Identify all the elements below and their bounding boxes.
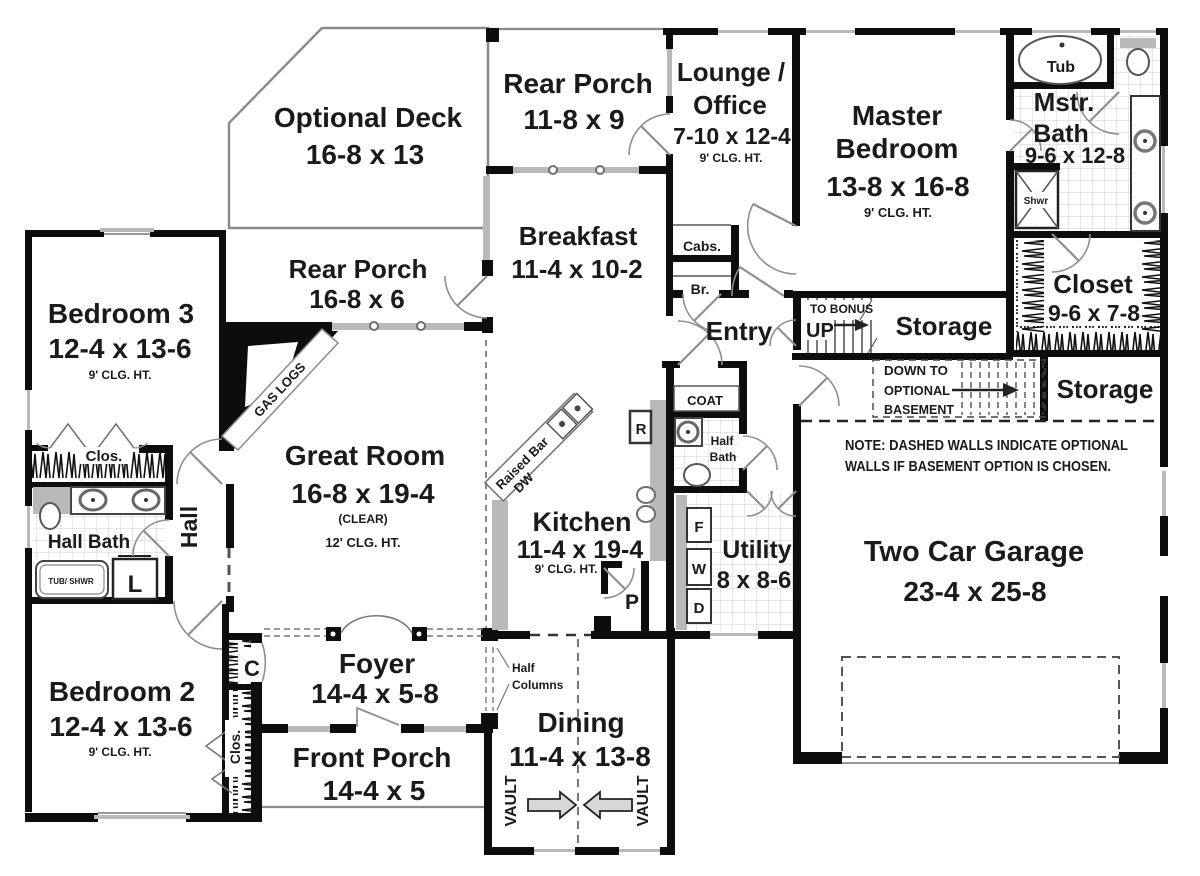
svg-text:12-4 x 13-6: 12-4 x 13-6 bbox=[49, 711, 192, 742]
svg-text:Dining: Dining bbox=[537, 707, 624, 738]
svg-text:12' CLG. HT.: 12' CLG. HT. bbox=[325, 535, 400, 550]
svg-text:Half: Half bbox=[512, 661, 536, 675]
svg-text:11-4 x 19-4: 11-4 x 19-4 bbox=[517, 536, 644, 564]
svg-text:Office: Office bbox=[693, 90, 767, 120]
svg-text:Half: Half bbox=[711, 434, 735, 448]
svg-text:Front Porch: Front Porch bbox=[293, 742, 452, 773]
svg-text:Clos.: Clos. bbox=[86, 448, 123, 465]
svg-text:C: C bbox=[244, 656, 260, 681]
svg-text:Hall: Hall bbox=[176, 506, 202, 548]
svg-text:Two Car Garage: Two Car Garage bbox=[864, 536, 1084, 568]
svg-text:16-8 x 19-4: 16-8 x 19-4 bbox=[291, 478, 435, 509]
svg-text:Closet: Closet bbox=[1053, 269, 1133, 299]
svg-text:Entry: Entry bbox=[706, 316, 773, 346]
svg-text:R: R bbox=[636, 421, 647, 438]
svg-text:Cabs.: Cabs. bbox=[683, 238, 721, 254]
svg-text:P: P bbox=[625, 591, 639, 614]
svg-text:11-8 x 9: 11-8 x 9 bbox=[523, 104, 624, 135]
svg-text:Kitchen: Kitchen bbox=[532, 507, 631, 537]
svg-text:14-4 x 5-8: 14-4 x 5-8 bbox=[311, 678, 439, 709]
svg-text:Master: Master bbox=[852, 100, 942, 131]
svg-text:Optional Deck: Optional Deck bbox=[274, 102, 463, 133]
svg-text:Storage: Storage bbox=[896, 311, 993, 341]
svg-text:7-10 x 12-4: 7-10 x 12-4 bbox=[673, 123, 791, 149]
svg-text:9-6 x 7-8: 9-6 x 7-8 bbox=[1048, 300, 1140, 326]
svg-text:TO BONUS: TO BONUS bbox=[810, 302, 873, 316]
svg-text:Shwr: Shwr bbox=[1024, 196, 1049, 207]
svg-text:Utility: Utility bbox=[722, 536, 792, 564]
svg-text:Bedroom: Bedroom bbox=[836, 133, 959, 164]
svg-text:9' CLG. HT.: 9' CLG. HT. bbox=[89, 368, 152, 382]
svg-text:Bedroom 2: Bedroom 2 bbox=[49, 676, 195, 707]
svg-text:Rear Porch: Rear Porch bbox=[289, 254, 428, 284]
svg-text:TUB/ SHWR: TUB/ SHWR bbox=[48, 577, 94, 586]
svg-text:VAULT: VAULT bbox=[503, 775, 520, 826]
svg-text:DOWN TO: DOWN TO bbox=[884, 364, 948, 378]
svg-text:NOTE: DASHED WALLS INDICATE OP: NOTE: DASHED WALLS INDICATE OPTIONAL bbox=[845, 437, 1128, 454]
svg-text:UP: UP bbox=[806, 320, 834, 342]
svg-text:Mstr.: Mstr. bbox=[1034, 87, 1095, 117]
svg-text:Great Room: Great Room bbox=[285, 440, 445, 471]
svg-text:D: D bbox=[694, 600, 705, 617]
svg-text:Breakfast: Breakfast bbox=[519, 221, 638, 251]
svg-text:OPTIONAL: OPTIONAL bbox=[884, 384, 950, 398]
svg-text:Bath: Bath bbox=[710, 450, 737, 464]
svg-text:8 x 8-6: 8 x 8-6 bbox=[717, 567, 792, 594]
svg-text:9' CLG. HT.: 9' CLG. HT. bbox=[864, 205, 932, 220]
svg-text:Br.: Br. bbox=[691, 281, 710, 297]
svg-text:16-8 x 13: 16-8 x 13 bbox=[306, 139, 424, 170]
svg-text:BASEMENT: BASEMENT bbox=[884, 403, 954, 417]
svg-text:Columns: Columns bbox=[512, 678, 564, 692]
svg-text:12-4 x 13-6: 12-4 x 13-6 bbox=[48, 333, 191, 364]
svg-text:Tub: Tub bbox=[1047, 59, 1075, 76]
svg-text:Hall Bath: Hall Bath bbox=[48, 532, 130, 553]
svg-text:23-4 x 25-8: 23-4 x 25-8 bbox=[903, 576, 1046, 607]
svg-text:14-4 x 5: 14-4 x 5 bbox=[323, 775, 426, 806]
svg-text:Lounge /: Lounge / bbox=[677, 57, 785, 87]
svg-text:9-6 x 12-8: 9-6 x 12-8 bbox=[1025, 143, 1125, 168]
svg-text:9' CLG. HT.: 9' CLG. HT. bbox=[535, 562, 598, 576]
svg-text:F: F bbox=[694, 519, 703, 536]
svg-text:Clos.: Clos. bbox=[227, 730, 243, 764]
svg-text:Bedroom 3: Bedroom 3 bbox=[48, 298, 194, 329]
svg-text:Rear Porch: Rear Porch bbox=[503, 68, 652, 99]
svg-text:11-4 x 10-2: 11-4 x 10-2 bbox=[511, 254, 643, 284]
svg-text:11-4 x 13-8: 11-4 x 13-8 bbox=[509, 741, 651, 772]
svg-text:Foyer: Foyer bbox=[339, 648, 415, 679]
svg-text:13-8 x 16-8: 13-8 x 16-8 bbox=[826, 171, 969, 202]
svg-text:(CLEAR): (CLEAR) bbox=[338, 512, 387, 526]
svg-text:Storage: Storage bbox=[1057, 374, 1154, 404]
svg-text:16-8 x 6: 16-8 x 6 bbox=[309, 284, 404, 314]
svg-text:9' CLG. HT.: 9' CLG. HT. bbox=[700, 151, 763, 165]
svg-text:COAT: COAT bbox=[687, 393, 723, 408]
svg-text:VAULT: VAULT bbox=[635, 775, 652, 826]
svg-text:L: L bbox=[128, 571, 143, 598]
svg-text:WALLS IF BASEMENT OPTION IS CH: WALLS IF BASEMENT OPTION IS CHOSEN. bbox=[845, 458, 1111, 475]
svg-text:9' CLG. HT.: 9' CLG. HT. bbox=[89, 745, 152, 759]
svg-text:W: W bbox=[692, 561, 707, 578]
